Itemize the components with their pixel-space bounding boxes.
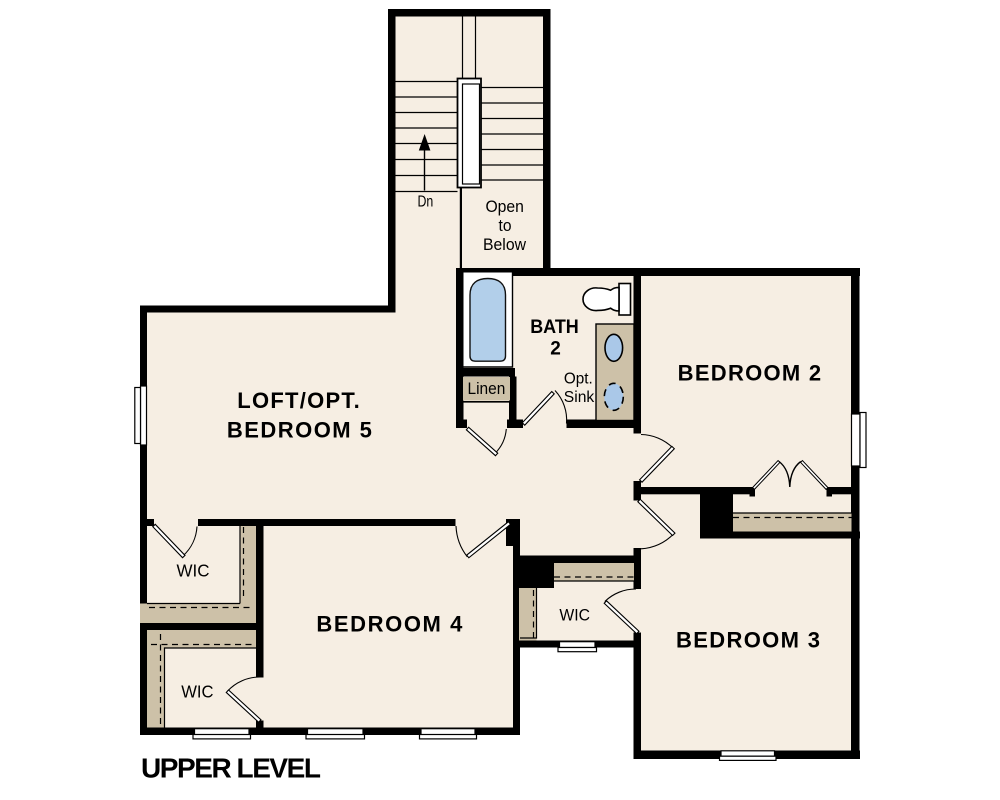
svg-text:Below: Below: [483, 235, 527, 254]
svg-text:Sink: Sink: [564, 389, 595, 406]
svg-text:BEDROOM 2: BEDROOM 2: [678, 361, 822, 386]
svg-text:Dn: Dn: [418, 194, 434, 211]
svg-text:BATH: BATH: [530, 317, 579, 338]
svg-text:Linen: Linen: [468, 379, 506, 398]
svg-text:WIC: WIC: [181, 681, 213, 701]
svg-text:Opt.: Opt.: [564, 371, 593, 388]
svg-text:Open: Open: [485, 197, 524, 216]
svg-text:WIC: WIC: [177, 561, 210, 581]
svg-text:WIC: WIC: [559, 606, 590, 625]
svg-text:to: to: [499, 216, 512, 235]
svg-text:BEDROOM 3: BEDROOM 3: [676, 628, 820, 653]
svg-text:UPPER LEVEL: UPPER LEVEL: [141, 752, 321, 783]
svg-text:BEDROOM 5: BEDROOM 5: [227, 418, 372, 443]
svg-text:2: 2: [550, 339, 561, 360]
